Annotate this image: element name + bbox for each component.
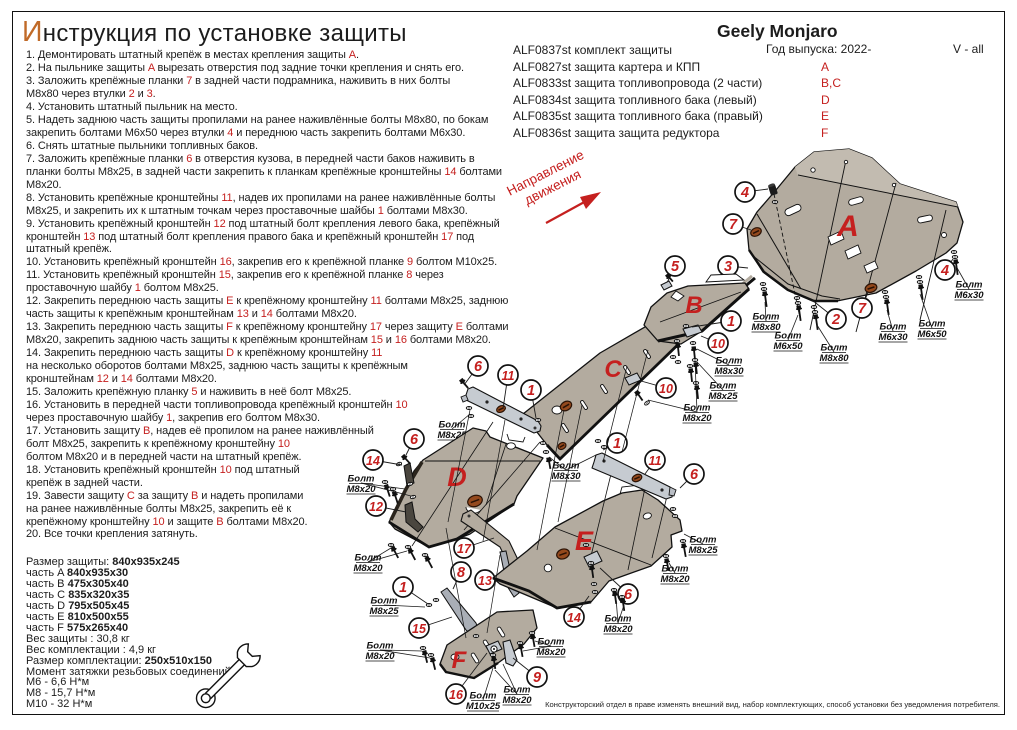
svg-text:М6х30: М6х30 bbox=[878, 332, 908, 343]
svg-text:М8х20: М8х20 bbox=[346, 484, 376, 495]
svg-text:М6х50: М6х50 bbox=[773, 341, 803, 352]
svg-text:6: 6 bbox=[474, 359, 483, 375]
svg-text:B: B bbox=[685, 292, 702, 319]
svg-text:14: 14 bbox=[567, 611, 581, 625]
svg-text:Болт: Болт bbox=[716, 356, 743, 367]
svg-text:4: 4 bbox=[940, 263, 949, 279]
svg-text:Болт: Болт bbox=[439, 420, 466, 431]
svg-text:5: 5 bbox=[671, 259, 680, 275]
svg-text:E: E bbox=[575, 526, 594, 556]
svg-text:17: 17 bbox=[457, 542, 472, 556]
svg-text:М8х20: М8х20 bbox=[365, 651, 395, 662]
svg-text:Болт: Болт bbox=[690, 535, 717, 546]
svg-text:F: F bbox=[452, 647, 468, 674]
svg-text:13: 13 bbox=[478, 574, 492, 588]
svg-text:C: C bbox=[604, 356, 622, 383]
svg-text:Болт: Болт bbox=[662, 564, 689, 575]
svg-text:10: 10 bbox=[711, 337, 725, 351]
svg-text:4: 4 bbox=[740, 185, 749, 201]
svg-text:10: 10 bbox=[659, 382, 673, 396]
svg-text:11: 11 bbox=[502, 369, 515, 383]
svg-text:М6х30: М6х30 bbox=[954, 290, 984, 301]
svg-text:М8х80: М8х80 bbox=[819, 353, 849, 364]
svg-text:7: 7 bbox=[858, 301, 867, 317]
svg-text:М6х50: М6х50 bbox=[917, 329, 947, 340]
svg-text:Болт: Болт bbox=[919, 319, 946, 330]
svg-text:1: 1 bbox=[613, 436, 621, 452]
svg-text:1: 1 bbox=[527, 383, 535, 399]
svg-text:12: 12 bbox=[369, 500, 383, 514]
svg-text:М8х20: М8х20 bbox=[660, 574, 690, 585]
svg-text:Болт: Болт bbox=[605, 614, 632, 625]
svg-text:A: A bbox=[836, 210, 859, 243]
svg-text:М8х20: М8х20 bbox=[682, 413, 712, 424]
svg-text:Болт: Болт bbox=[538, 637, 565, 648]
svg-text:3: 3 bbox=[724, 259, 732, 275]
svg-text:11: 11 bbox=[649, 454, 662, 468]
svg-text:М8х25: М8х25 bbox=[708, 391, 738, 402]
svg-text:14: 14 bbox=[366, 454, 380, 468]
svg-text:9: 9 bbox=[533, 670, 541, 686]
svg-text:Болт: Болт bbox=[684, 403, 711, 414]
svg-text:Болт: Болт bbox=[371, 596, 398, 607]
svg-text:Болт: Болт bbox=[775, 331, 802, 342]
svg-text:6: 6 bbox=[624, 587, 633, 603]
svg-text:Болт: Болт bbox=[710, 381, 737, 392]
svg-text:М8х25: М8х25 bbox=[369, 606, 399, 617]
svg-text:М8х25: М8х25 bbox=[688, 545, 718, 556]
svg-text:6: 6 bbox=[410, 432, 419, 448]
svg-text:Болт: Болт bbox=[504, 685, 531, 696]
svg-text:1: 1 bbox=[399, 580, 407, 596]
svg-text:Болт: Болт bbox=[553, 461, 580, 472]
svg-text:Болт: Болт bbox=[821, 343, 848, 354]
svg-text:15: 15 bbox=[412, 622, 427, 636]
svg-text:Болт: Болт bbox=[880, 322, 907, 333]
svg-text:7: 7 bbox=[729, 217, 738, 233]
svg-text:1: 1 bbox=[727, 314, 735, 330]
svg-text:8: 8 bbox=[457, 565, 466, 581]
svg-text:М10х25: М10х25 bbox=[466, 701, 501, 712]
svg-text:Болт: Болт bbox=[470, 691, 497, 702]
svg-text:М8х20: М8х20 bbox=[536, 647, 566, 658]
svg-text:М8х20: М8х20 bbox=[353, 563, 383, 574]
svg-text:16: 16 bbox=[449, 688, 464, 702]
svg-text:2: 2 bbox=[831, 312, 840, 328]
svg-text:Болт: Болт bbox=[753, 312, 780, 323]
svg-text:М8х20: М8х20 bbox=[502, 695, 532, 706]
svg-text:М8х30: М8х30 bbox=[714, 366, 744, 377]
svg-text:Болт: Болт bbox=[367, 641, 394, 652]
svg-text:Болт: Болт bbox=[956, 280, 983, 291]
svg-text:М8х20: М8х20 bbox=[603, 624, 633, 635]
svg-text:Болт: Болт bbox=[348, 474, 375, 485]
svg-text:Болт: Болт bbox=[355, 553, 382, 564]
svg-text:6: 6 bbox=[690, 467, 699, 483]
